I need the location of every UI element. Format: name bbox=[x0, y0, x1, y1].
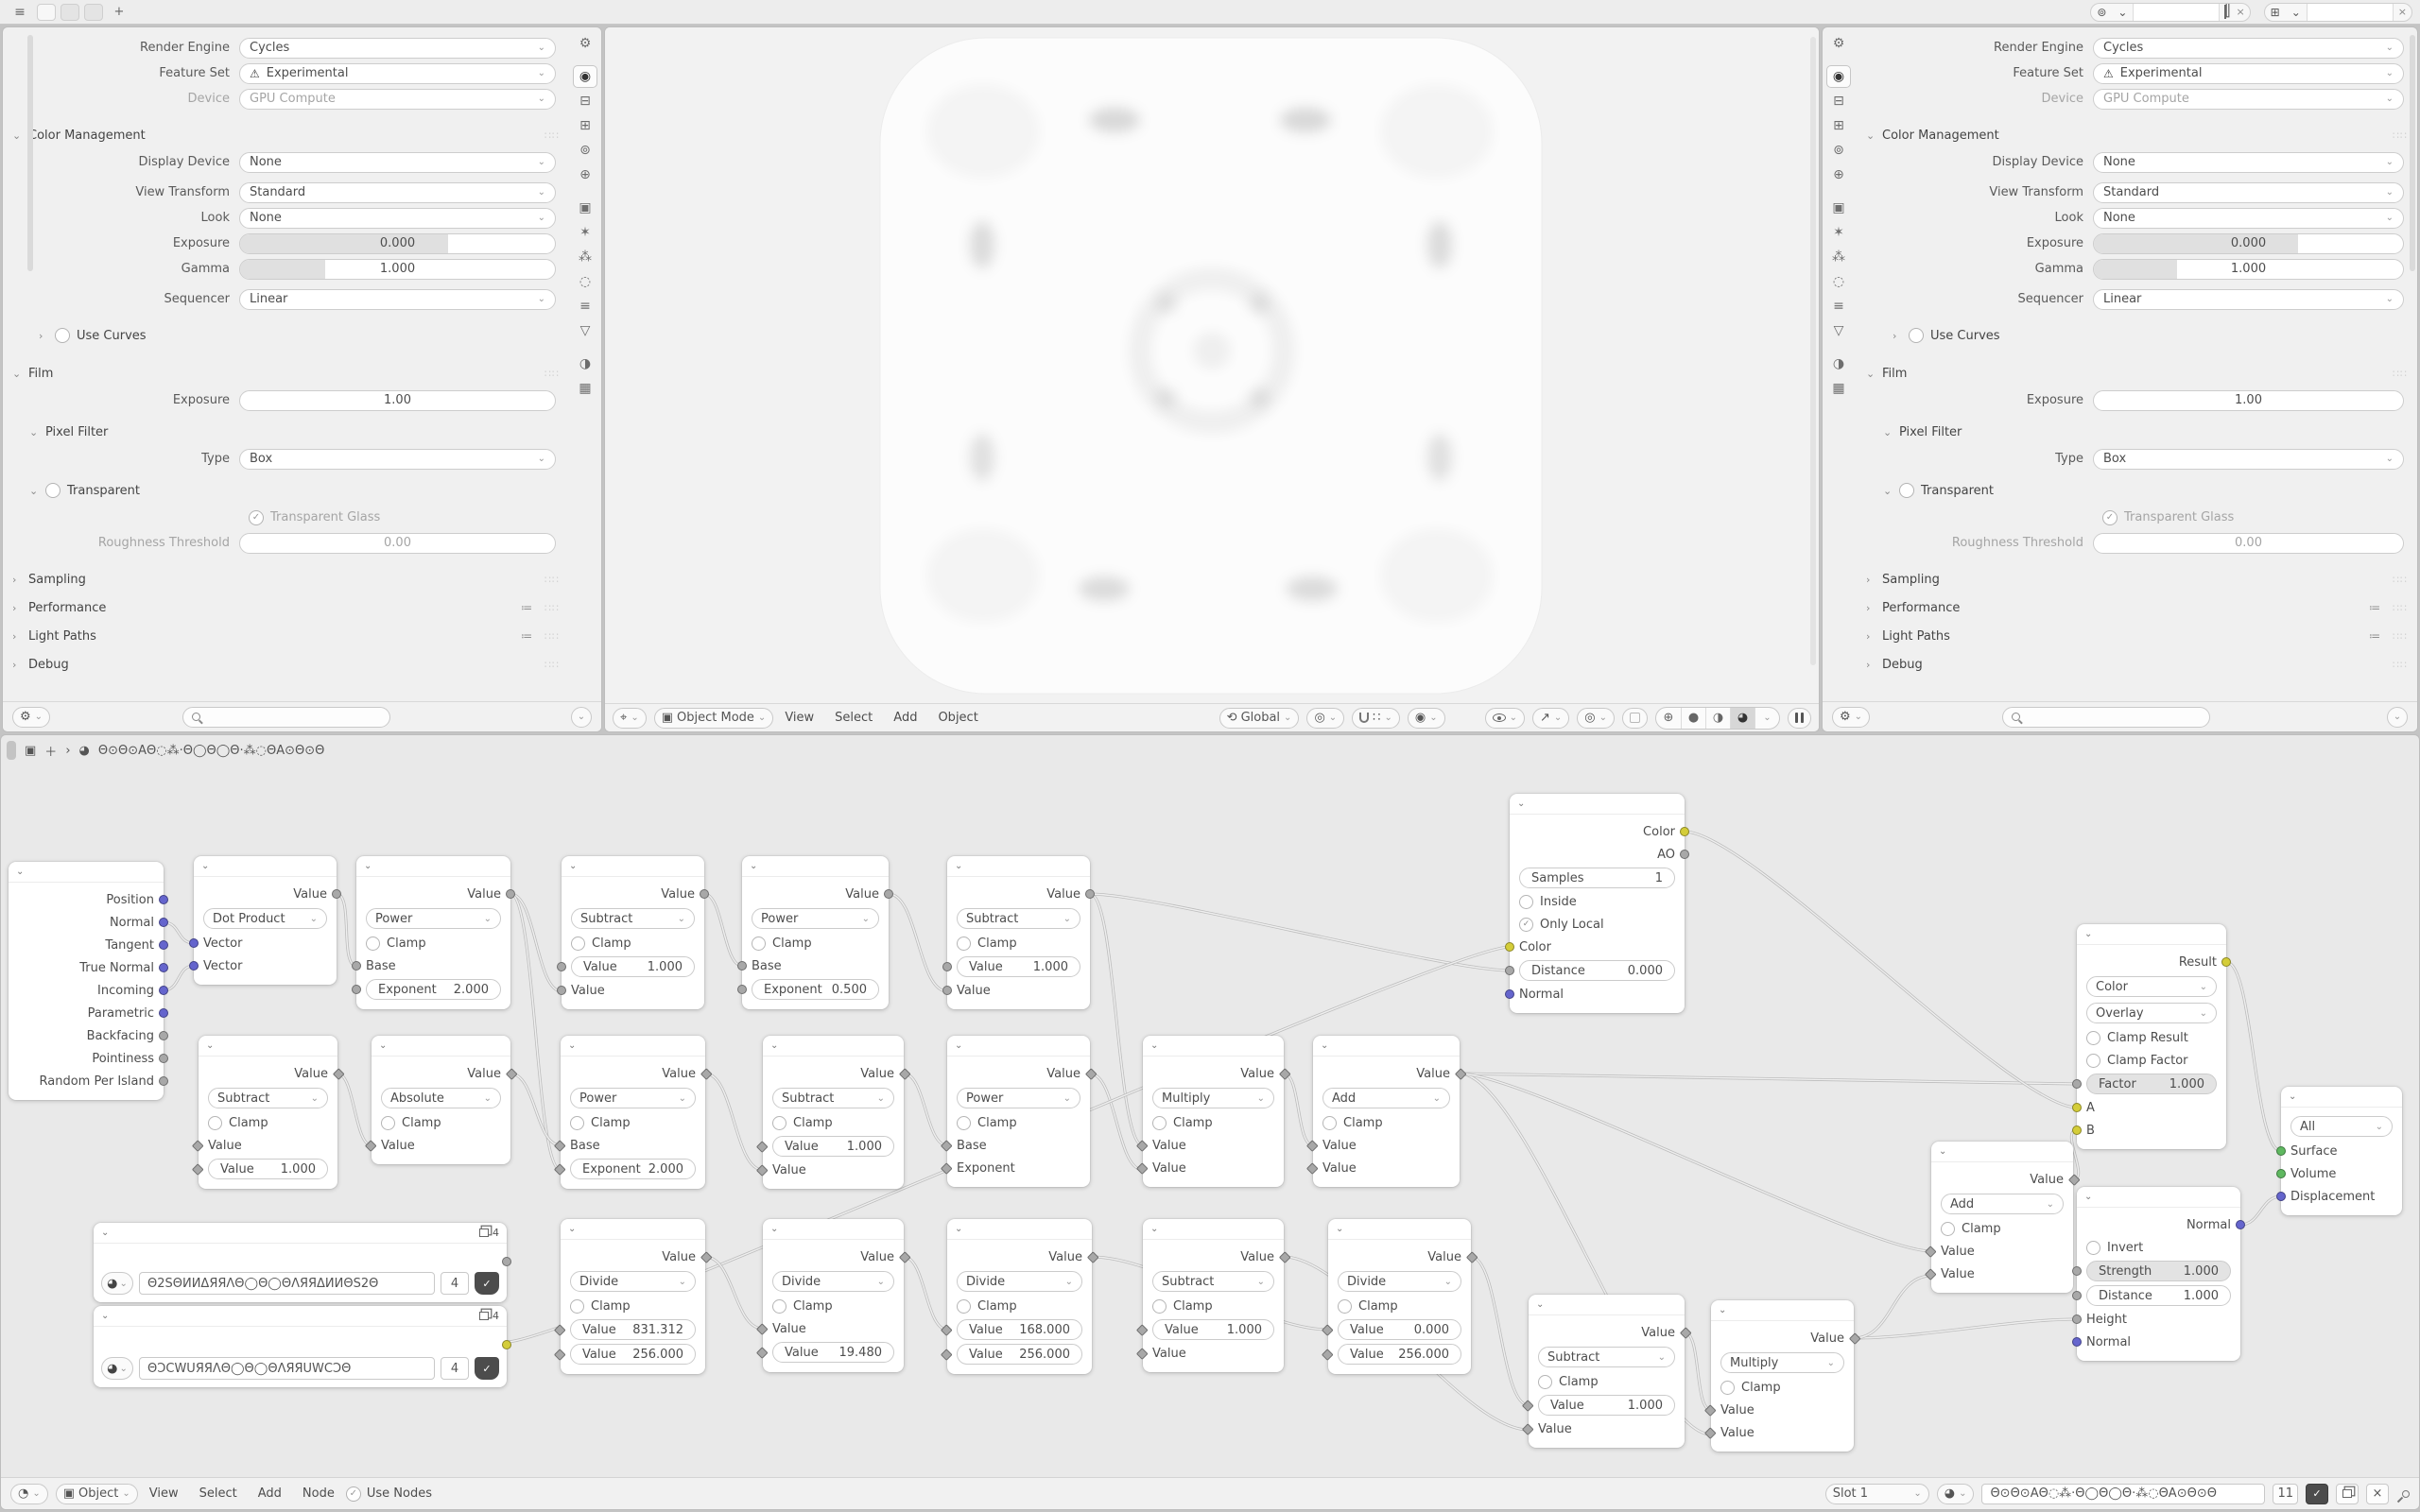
node-operation-dropdown[interactable]: Add⌄ bbox=[1941, 1194, 2064, 1214]
node-operation-dropdown[interactable]: Color⌄ bbox=[2086, 976, 2217, 997]
socket-gray[interactable] bbox=[554, 1324, 565, 1335]
panel-section-debug[interactable]: ›Debug∷∷ bbox=[1857, 650, 2417, 679]
collapse-chevron-icon[interactable]: ⌄ bbox=[1719, 1305, 1726, 1315]
socket-gray[interactable] bbox=[557, 986, 566, 995]
properties-tab-world[interactable]: ⊕ bbox=[1826, 163, 1851, 186]
shading-options-button[interactable]: ⌄ bbox=[1754, 708, 1779, 729]
socket-gray[interactable] bbox=[506, 1068, 517, 1079]
socket-green[interactable] bbox=[2276, 1169, 2286, 1178]
node-checkbox-clamp[interactable]: Clamp bbox=[947, 932, 1090, 954]
collapse-chevron-icon[interactable]: ⌄ bbox=[16, 867, 24, 877]
properties-tab-scene[interactable]: ⊚ bbox=[573, 139, 597, 162]
node-header[interactable]: ⌄ bbox=[356, 856, 510, 877]
node-checkbox-clamp[interactable]: Clamp bbox=[742, 932, 889, 954]
value-field[interactable]: Distance0.000 bbox=[1519, 960, 1675, 981]
node-header[interactable]: ⌄ bbox=[1143, 1036, 1284, 1057]
node-operation-dropdown[interactable]: Subtract⌄ bbox=[208, 1088, 328, 1108]
browse-material-button[interactable]: ◕⌄ bbox=[1937, 1484, 1975, 1504]
node-math-subtract-4[interactable]: ⌄ValueSubtract⌄ClampValue1.000Value bbox=[763, 1036, 904, 1189]
socket-gray[interactable] bbox=[700, 889, 709, 899]
node-header[interactable]: ⌄ bbox=[763, 1036, 904, 1057]
node-checkbox-only-local[interactable]: ✓Only Local bbox=[1510, 913, 1685, 936]
node-math-power-4[interactable]: ⌄ValuePower⌄ClampBaseExponent bbox=[947, 1036, 1090, 1187]
region-handle[interactable] bbox=[7, 741, 16, 760]
socket-gray[interactable] bbox=[1522, 1423, 1533, 1435]
slider-exposure[interactable]: 0.000 bbox=[239, 233, 556, 254]
node-math-subtract-1[interactable]: ⌄ValueSubtract⌄ClampValue1.000Value bbox=[562, 856, 704, 1009]
node-header[interactable]: ⌄ bbox=[947, 856, 1090, 877]
value-field[interactable]: Distance1.000 bbox=[2086, 1285, 2231, 1306]
value-field[interactable]: Value19.480 bbox=[772, 1342, 894, 1363]
node-header[interactable]: ⌄ bbox=[562, 856, 704, 877]
socket-blue[interactable] bbox=[159, 1008, 168, 1018]
socket-gray[interactable] bbox=[1680, 850, 1689, 859]
gizmos-dropdown[interactable]: ↗⌄ bbox=[1532, 708, 1569, 729]
socket-blue[interactable] bbox=[159, 940, 168, 950]
shading-wireframe-button[interactable]: ⊕ bbox=[1656, 708, 1681, 729]
value-field[interactable]: Value256.000 bbox=[957, 1344, 1082, 1365]
node-geometry[interactable]: ⌄PositionNormalTangentTrue NormalIncomin… bbox=[9, 862, 164, 1100]
checkbox-icon[interactable]: ✓ bbox=[249, 510, 264, 525]
panel-section-transparent[interactable]: ⌄Transparent bbox=[20, 476, 569, 505]
dropdown-type[interactable]: Box⌄ bbox=[239, 449, 556, 470]
socket-gray[interactable] bbox=[884, 889, 893, 899]
fake-user-shield-button[interactable]: ✓ bbox=[2306, 1484, 2328, 1504]
socket-blue[interactable] bbox=[159, 963, 168, 972]
socket-gray[interactable] bbox=[1279, 1068, 1290, 1079]
node-math-subtract-6[interactable]: ⌄ValueSubtract⌄ClampValue1.000Value bbox=[1529, 1295, 1685, 1448]
socket-gray[interactable] bbox=[1136, 1324, 1148, 1335]
socket-yellow[interactable] bbox=[2072, 1103, 2082, 1112]
socket-gray[interactable] bbox=[700, 1251, 712, 1263]
socket-gray[interactable] bbox=[2072, 1314, 2082, 1324]
properties-tab-object[interactable]: ▣ bbox=[573, 197, 597, 219]
scene-name-field[interactable] bbox=[2133, 4, 2220, 21]
checkbox-icon[interactable] bbox=[1899, 483, 1914, 498]
socket-yellow[interactable] bbox=[1505, 942, 1514, 952]
node-math-subtract-5[interactable]: ⌄ValueSubtract⌄ClampValue1.000Value bbox=[1143, 1219, 1284, 1372]
panel-section-performance[interactable]: ›Performance≔∷∷ bbox=[3, 593, 569, 622]
fake-user-shield-button[interactable]: ✓ bbox=[475, 1272, 499, 1295]
dropdown-look[interactable]: None⌄ bbox=[239, 208, 556, 229]
value-field[interactable]: Value168.000 bbox=[957, 1319, 1082, 1340]
socket-yellow[interactable] bbox=[1680, 827, 1689, 836]
collapse-chevron-icon[interactable]: ⌄ bbox=[1939, 1146, 1946, 1157]
socket-gray[interactable] bbox=[1522, 1400, 1533, 1411]
collapse-chevron-icon[interactable]: ⌄ bbox=[1336, 1224, 1343, 1234]
node-checkbox-clamp[interactable]: Clamp bbox=[763, 1111, 904, 1134]
socket-gray[interactable] bbox=[1136, 1162, 1148, 1174]
socket-gray[interactable] bbox=[506, 889, 515, 899]
visibility-dropdown[interactable]: ⌄ bbox=[1485, 708, 1525, 729]
panel-section-sampling[interactable]: ›Sampling∷∷ bbox=[3, 565, 569, 593]
node-menu-node[interactable]: Node bbox=[299, 1486, 338, 1501]
socket-gray[interactable] bbox=[756, 1141, 768, 1152]
number-field-exposure[interactable]: 1.00 bbox=[2093, 390, 2404, 411]
socket-gray[interactable] bbox=[737, 961, 747, 971]
viewport-menu-object[interactable]: Object bbox=[934, 711, 981, 725]
shading-solid-button[interactable]: ● bbox=[1681, 708, 1705, 729]
node-checkbox-clamp[interactable]: Clamp bbox=[1529, 1370, 1685, 1393]
node-header[interactable]: ⌄4 bbox=[94, 1223, 507, 1244]
node-header[interactable]: ⌄ bbox=[2281, 1087, 2402, 1108]
checkbox-icon[interactable] bbox=[1909, 328, 1924, 343]
socket-gray[interactable] bbox=[2072, 1291, 2082, 1300]
socket-blue[interactable] bbox=[2236, 1220, 2245, 1229]
socket-gray[interactable] bbox=[941, 1140, 952, 1151]
value-field[interactable]: Factor1.000 bbox=[2086, 1074, 2217, 1094]
node-operation-dropdown[interactable]: Multiply⌄ bbox=[1152, 1088, 1274, 1108]
socket-gray[interactable] bbox=[1849, 1332, 1860, 1344]
node-operation-dropdown[interactable]: Subtract⌄ bbox=[772, 1088, 894, 1108]
number-field-exposure[interactable]: 1.00 bbox=[239, 390, 556, 411]
node-header[interactable]: ⌄ bbox=[2077, 1187, 2240, 1208]
unlink-material-button[interactable]: × bbox=[2366, 1484, 2389, 1504]
socket-gray[interactable] bbox=[333, 1068, 344, 1079]
node-header[interactable]: ⌄ bbox=[372, 1036, 510, 1057]
socket-gray[interactable] bbox=[352, 985, 361, 994]
socket-gray[interactable] bbox=[1466, 1251, 1478, 1263]
material-browse-button[interactable]: ◕⌄ bbox=[101, 1272, 133, 1295]
node-operation-dropdown[interactable]: Divide⌄ bbox=[570, 1271, 696, 1292]
collapse-chevron-icon[interactable]: ⌄ bbox=[2084, 1192, 2092, 1202]
properties-tab-constraints[interactable]: ≡ bbox=[573, 295, 597, 318]
socket-gray[interactable] bbox=[159, 1031, 168, 1040]
socket-gray[interactable] bbox=[1704, 1404, 1716, 1416]
socket-gray[interactable] bbox=[737, 985, 747, 994]
properties-tab-texture[interactable]: ▦ bbox=[1826, 377, 1851, 400]
node-checkbox-clamp[interactable]: Clamp bbox=[1313, 1111, 1460, 1134]
socket-gray[interactable] bbox=[941, 1349, 952, 1360]
properties-tab-view-layer[interactable]: ⊞ bbox=[1826, 114, 1851, 137]
datablock-name-field[interactable]: Θ2ЅΘИИΔЯЯΛΘ◯Θ◯ΘΛЯЯΔИИΘЅ2Θ bbox=[139, 1272, 435, 1295]
socket-gray[interactable] bbox=[2072, 1079, 2082, 1089]
panel-section-pixel-filter[interactable]: ⌄Pixel Filter bbox=[20, 418, 569, 446]
value-field[interactable]: Exponent0.500 bbox=[752, 979, 879, 1000]
properties-tab-tool[interactable]: ⚙ bbox=[573, 32, 597, 55]
node-header[interactable]: ⌄ bbox=[742, 856, 889, 877]
socket-gray[interactable] bbox=[554, 1349, 565, 1360]
node-operation-dropdown[interactable]: Divide⌄ bbox=[772, 1271, 894, 1292]
socket-gray[interactable] bbox=[1087, 1251, 1098, 1263]
properties-tab-world[interactable]: ⊕ bbox=[573, 163, 597, 186]
node-attribute-1[interactable]: ⌄4◕⌄Θ2ЅΘИИΔЯЯΛΘ◯Θ◯ΘΛЯЯΔИИΘЅ2Θ4✓ bbox=[94, 1223, 507, 1302]
dropdown-render-engine[interactable]: Cycles⌄ bbox=[2093, 38, 2404, 59]
dropdown-look[interactable]: None⌄ bbox=[2093, 208, 2404, 229]
node-operation-dropdown[interactable]: Dot Product⌄ bbox=[203, 908, 327, 929]
node-math-power-1[interactable]: ⌄ValuePower⌄ClampBaseExponent2.000 bbox=[356, 856, 510, 1009]
node-header[interactable]: ⌄ bbox=[199, 1036, 337, 1057]
properties-tab-physics[interactable]: ◌ bbox=[573, 270, 597, 293]
node-checkbox-inside[interactable]: Inside bbox=[1510, 890, 1685, 913]
node-canvas[interactable]: ⌄PositionNormalTangentTrue NormalIncomin… bbox=[1, 735, 2419, 1509]
node-operation-dropdown[interactable]: Divide⌄ bbox=[957, 1271, 1082, 1292]
node-checkbox-clamp[interactable]: Clamp bbox=[1143, 1111, 1284, 1134]
node-bump[interactable]: ⌄NormalInvertStrength1.000Distance1.000H… bbox=[2077, 1187, 2240, 1361]
value-field[interactable]: Value831.312 bbox=[570, 1319, 696, 1340]
socket-blue[interactable] bbox=[159, 918, 168, 927]
collapse-chevron-icon[interactable]: ⌄ bbox=[1536, 1299, 1544, 1310]
node-math-power-2[interactable]: ⌄ValuePower⌄ClampBaseExponent0.500 bbox=[742, 856, 889, 1009]
properties-tab-output[interactable]: ⊟ bbox=[1826, 90, 1851, 112]
node-header[interactable]: ⌄ bbox=[561, 1036, 705, 1057]
socket-gray[interactable] bbox=[756, 1164, 768, 1176]
editor-type-button[interactable]: ⌖⌄ bbox=[613, 708, 647, 729]
checkbox-icon[interactable] bbox=[45, 483, 60, 498]
new-scene-button[interactable] bbox=[2220, 6, 2231, 18]
socket-blue[interactable] bbox=[189, 961, 199, 971]
value-field[interactable]: Value1.000 bbox=[208, 1159, 328, 1179]
app-menu-icon[interactable]: ≡ bbox=[8, 5, 32, 20]
node-header[interactable]: ⌄ bbox=[1510, 794, 1685, 815]
value-field[interactable]: Value1.000 bbox=[1538, 1395, 1675, 1416]
node-header[interactable]: ⌄ bbox=[1711, 1300, 1854, 1321]
workspace-tab[interactable] bbox=[84, 4, 103, 21]
node-mix-color[interactable]: ⌄ResultColor⌄Overlay⌄Clamp ResultClamp F… bbox=[2077, 924, 2226, 1149]
node-checkbox-clamp[interactable]: Clamp bbox=[947, 1111, 1090, 1134]
mode-selector[interactable]: ▣Object Mode⌄ bbox=[654, 708, 774, 729]
properties-tab-modifiers[interactable]: ✶ bbox=[573, 221, 597, 244]
value-field[interactable]: Exponent2.000 bbox=[570, 1159, 696, 1179]
number-field-roughness-threshold[interactable]: 0.00 bbox=[239, 533, 556, 554]
socket-gray[interactable] bbox=[1925, 1246, 1936, 1257]
node-math-add-2[interactable]: ⌄ValueAdd⌄ClampValueValue bbox=[1931, 1142, 2073, 1293]
socket-gray[interactable] bbox=[1279, 1251, 1290, 1263]
properties-tab-modifiers[interactable]: ✶ bbox=[1826, 221, 1851, 244]
node-checkbox-clamp[interactable]: Clamp bbox=[1143, 1295, 1284, 1317]
node-operation-dropdown[interactable]: Add⌄ bbox=[1322, 1088, 1450, 1108]
socket-blue[interactable] bbox=[2276, 1192, 2286, 1201]
socket-gray[interactable] bbox=[352, 961, 361, 971]
node-header[interactable]: ⌄ bbox=[947, 1219, 1092, 1240]
viewport-menu-select[interactable]: Select bbox=[831, 711, 876, 725]
properties-tab-tool[interactable]: ⚙ bbox=[1826, 32, 1851, 55]
node-attribute-2[interactable]: ⌄4◕⌄ΘƆСWUЯЯΛΘ◯Θ◯ΘΛЯЯUWСƆΘ4✓ bbox=[94, 1306, 507, 1387]
properties-tab-particles[interactable]: ⁂ bbox=[1826, 246, 1851, 268]
node-menu-view[interactable]: View bbox=[146, 1486, 182, 1501]
dropdown-feature-set[interactable]: ⚠Experimental⌄ bbox=[239, 63, 556, 84]
node-checkbox-clamp-factor[interactable]: Clamp Factor bbox=[2077, 1049, 2226, 1072]
properties-tab-physics[interactable]: ◌ bbox=[1826, 270, 1851, 293]
dropdown-feature-set[interactable]: ⚠Experimental⌄ bbox=[2093, 63, 2404, 84]
collapse-chevron-icon[interactable]: ⌄ bbox=[770, 1040, 778, 1051]
panel-section-debug[interactable]: ›Debug∷∷ bbox=[3, 650, 569, 679]
socket-gray[interactable] bbox=[159, 1054, 168, 1063]
node-checkbox-clamp[interactable]: Clamp bbox=[947, 1295, 1092, 1317]
panel-section-film[interactable]: ⌄Film∷∷ bbox=[1857, 359, 2417, 387]
node-operation-dropdown[interactable]: Subtract⌄ bbox=[1538, 1347, 1675, 1367]
fake-user-shield-button[interactable]: ✓ bbox=[475, 1357, 499, 1380]
material-slot-selector[interactable]: Slot 1⌄ bbox=[1825, 1484, 1929, 1504]
datablock-name-field[interactable]: ΘƆСWUЯЯΛΘ◯Θ◯ΘΛЯЯUWСƆΘ bbox=[139, 1357, 435, 1380]
shading-material-button[interactable]: ◑ bbox=[1705, 708, 1730, 729]
socket-gray[interactable] bbox=[192, 1163, 203, 1175]
socket-gray[interactable] bbox=[756, 1347, 768, 1358]
socket-gray[interactable] bbox=[1704, 1427, 1716, 1438]
options-button[interactable]: ⌄ bbox=[2387, 707, 2408, 728]
collapse-chevron-icon[interactable]: ⌄ bbox=[364, 861, 372, 871]
node-checkbox-clamp[interactable]: Clamp bbox=[372, 1111, 510, 1134]
properties-tab-data[interactable]: ▽ bbox=[1826, 319, 1851, 342]
node-header[interactable]: ⌄ bbox=[947, 1036, 1090, 1057]
node-math-divide-1[interactable]: ⌄ValueDivide⌄ClampValue831.312Value256.0… bbox=[561, 1219, 705, 1374]
pause-render-button[interactable] bbox=[1788, 708, 1811, 729]
users-count[interactable]: 4 bbox=[441, 1272, 469, 1295]
socket-gray[interactable] bbox=[1136, 1140, 1148, 1151]
socket-gray[interactable] bbox=[1505, 966, 1514, 975]
dropdown-type[interactable]: Box⌄ bbox=[2093, 449, 2404, 470]
scene-selector[interactable]: ⊚⌄ × bbox=[2090, 3, 2250, 22]
node-operation-dropdown[interactable]: Power⌄ bbox=[366, 908, 501, 929]
node-checkbox-invert[interactable]: Invert bbox=[2077, 1236, 2240, 1259]
node-checkbox-clamp[interactable]: Clamp bbox=[561, 1295, 705, 1317]
socket-gray[interactable] bbox=[1925, 1268, 1936, 1280]
viewport-menu-view[interactable]: View bbox=[781, 711, 818, 725]
dropdown-display-device[interactable]: None⌄ bbox=[2093, 152, 2404, 173]
collapse-chevron-icon[interactable]: ⌄ bbox=[569, 861, 577, 871]
node-operation-dropdown[interactable]: Overlay⌄ bbox=[2086, 1003, 2217, 1023]
collapse-chevron-icon[interactable]: ⌄ bbox=[1321, 1040, 1328, 1051]
node-operation-dropdown[interactable]: Power⌄ bbox=[752, 908, 879, 929]
node-header[interactable]: ⌄ bbox=[194, 856, 337, 877]
value-field[interactable]: Value1.000 bbox=[1152, 1319, 1274, 1340]
editor-type-button[interactable]: ⚙⌄ bbox=[12, 707, 50, 728]
dropdown-view-transform[interactable]: Standard⌄ bbox=[239, 182, 556, 203]
socket-gray[interactable] bbox=[159, 1076, 168, 1086]
socket-blue[interactable] bbox=[1505, 989, 1514, 999]
dropdown-render-engine[interactable]: Cycles⌄ bbox=[239, 38, 556, 59]
snap-toggle[interactable]: ∷⌄ bbox=[1352, 708, 1400, 729]
socket-gray[interactable] bbox=[1322, 1324, 1333, 1335]
socket-gray[interactable] bbox=[1680, 1327, 1691, 1338]
value-field[interactable]: Value1.000 bbox=[571, 956, 695, 977]
socket-gray[interactable] bbox=[554, 1163, 565, 1175]
collapse-chevron-icon[interactable]: ⌄ bbox=[101, 1228, 109, 1238]
collapse-chevron-icon[interactable]: ⌄ bbox=[770, 1224, 778, 1234]
viewport-menu-add[interactable]: Add bbox=[890, 711, 921, 725]
collapse-chevron-icon[interactable]: ⌄ bbox=[568, 1040, 576, 1051]
shader-type-selector[interactable]: ▣Object⌄ bbox=[56, 1484, 138, 1504]
value-field[interactable]: Value256.000 bbox=[570, 1344, 696, 1365]
node-checkbox-clamp[interactable]: Clamp bbox=[1711, 1376, 1854, 1399]
node-checkbox-clamp[interactable]: Clamp bbox=[562, 932, 704, 954]
collapse-chevron-icon[interactable]: ⌄ bbox=[101, 1311, 109, 1321]
node-operation-dropdown[interactable]: All⌄ bbox=[2290, 1116, 2393, 1137]
node-checkbox-clamp[interactable]: Clamp bbox=[561, 1111, 705, 1134]
socket-gray[interactable] bbox=[1085, 1068, 1097, 1079]
node-checkbox-clamp[interactable]: Clamp bbox=[1328, 1295, 1471, 1317]
node-math-subtract-3[interactable]: ⌄ValueSubtract⌄ClampValueValue1.000 bbox=[199, 1036, 337, 1189]
search-input[interactable] bbox=[2002, 707, 2210, 728]
properties-tab-material[interactable]: ◑ bbox=[1826, 352, 1851, 375]
socket-blue[interactable] bbox=[2072, 1337, 2082, 1347]
pin-icon[interactable] bbox=[2400, 1488, 2411, 1499]
shading-rendered-button[interactable]: ◕ bbox=[1730, 708, 1754, 729]
material-users-count[interactable]: 11 bbox=[2273, 1484, 2298, 1504]
node-math-divide-2[interactable]: ⌄ValueDivide⌄ClampValueValue19.480 bbox=[763, 1219, 904, 1372]
node-ambient-occlusion[interactable]: ⌄ColorAOSamples1Inside✓Only LocalColorDi… bbox=[1510, 794, 1685, 1013]
unlink-scene-button[interactable]: × bbox=[2231, 6, 2249, 18]
socket-yellow[interactable] bbox=[502, 1340, 511, 1349]
search-input[interactable] bbox=[182, 707, 390, 728]
collapse-chevron-icon[interactable]: ⌄ bbox=[568, 1224, 576, 1234]
properties-tab-data[interactable]: ▽ bbox=[573, 319, 597, 342]
value-field[interactable]: Strength1.000 bbox=[2086, 1261, 2231, 1281]
node-menu-select[interactable]: Select bbox=[196, 1486, 241, 1501]
node-material-output[interactable]: ⌄All⌄SurfaceVolumeDisplacement bbox=[2281, 1087, 2402, 1215]
checkbox-icon[interactable] bbox=[55, 328, 70, 343]
panel-section-pixel-filter[interactable]: ⌄Pixel Filter bbox=[1874, 418, 2417, 446]
node-math-divide-3[interactable]: ⌄ValueDivide⌄ClampValue168.000Value256.0… bbox=[947, 1219, 1092, 1374]
socket-gray[interactable] bbox=[557, 962, 566, 971]
properties-tab-scene[interactable]: ⊚ bbox=[1826, 139, 1851, 162]
users-count[interactable]: 4 bbox=[441, 1357, 469, 1380]
socket-gray[interactable] bbox=[365, 1140, 376, 1151]
dropdown-sequencer[interactable]: Linear⌄ bbox=[239, 289, 556, 310]
socket-gray[interactable] bbox=[899, 1251, 910, 1263]
copy-material-button[interactable] bbox=[2336, 1484, 2359, 1504]
node-math-absolute[interactable]: ⌄ValueAbsolute⌄ClampValue bbox=[372, 1036, 510, 1164]
properties-tab-particles[interactable]: ⁂ bbox=[573, 246, 597, 268]
node-header[interactable]: ⌄ bbox=[1529, 1295, 1685, 1315]
socket-gray[interactable] bbox=[554, 1140, 565, 1151]
socket-gray[interactable] bbox=[700, 1068, 712, 1079]
socket-gray[interactable] bbox=[502, 1257, 511, 1266]
dropdown-display-device[interactable]: None⌄ bbox=[239, 152, 556, 173]
node-operation-dropdown[interactable]: Absolute⌄ bbox=[381, 1088, 501, 1108]
scrollbar[interactable] bbox=[27, 35, 33, 271]
node-operation-dropdown[interactable]: Subtract⌄ bbox=[957, 908, 1080, 929]
node-header[interactable]: ⌄4 bbox=[94, 1306, 507, 1327]
collapse-chevron-icon[interactable]: ⌄ bbox=[201, 861, 209, 871]
node-checkbox-clamp[interactable]: Clamp bbox=[199, 1111, 337, 1134]
scrollbar[interactable] bbox=[2410, 35, 2415, 271]
collapse-chevron-icon[interactable]: ⌄ bbox=[1517, 799, 1525, 809]
slider-exposure[interactable]: 0.000 bbox=[2093, 233, 2404, 254]
socket-gray[interactable] bbox=[192, 1140, 203, 1151]
node-header[interactable]: ⌄ bbox=[1328, 1219, 1471, 1240]
properties-tab-material[interactable]: ◑ bbox=[573, 352, 597, 375]
node-math-multiply-2[interactable]: ⌄ValueMultiply⌄ClampValueValue bbox=[1711, 1300, 1854, 1452]
socket-blue[interactable] bbox=[159, 986, 168, 995]
socket-gray[interactable] bbox=[942, 962, 952, 971]
value-field[interactable]: Exponent2.000 bbox=[366, 979, 501, 1000]
options-button[interactable]: ⌄ bbox=[571, 707, 592, 728]
properties-tab-render[interactable]: ◉ bbox=[573, 65, 597, 88]
properties-tab-object[interactable]: ▣ bbox=[1826, 197, 1851, 219]
socket-green[interactable] bbox=[2276, 1146, 2286, 1156]
socket-gray[interactable] bbox=[2072, 1266, 2082, 1276]
panel-section-light-paths[interactable]: ›Light Paths≔∷∷ bbox=[1857, 622, 2417, 650]
panel-section-color-management[interactable]: ⌄Color Management∷∷ bbox=[3, 121, 569, 149]
properties-tab-output[interactable]: ⊟ bbox=[573, 90, 597, 112]
socket-gray[interactable] bbox=[1322, 1349, 1333, 1360]
socket-gray[interactable] bbox=[899, 1068, 910, 1079]
dropdown-sequencer[interactable]: Linear⌄ bbox=[2093, 289, 2404, 310]
remove-view-layer-button[interactable]: × bbox=[2394, 6, 2411, 18]
dropdown-device[interactable]: GPU Compute⌄ bbox=[239, 89, 556, 110]
node-math-divide-4[interactable]: ⌄ValueDivide⌄ClampValue0.000Value256.000 bbox=[1328, 1219, 1471, 1374]
node-checkbox-clamp[interactable]: Clamp bbox=[1931, 1217, 2073, 1240]
node-operation-dropdown[interactable]: Divide⌄ bbox=[1338, 1271, 1461, 1292]
socket-gray[interactable] bbox=[332, 889, 341, 899]
material-browse-button[interactable]: ◕⌄ bbox=[101, 1357, 133, 1380]
value-field[interactable]: Value1.000 bbox=[957, 956, 1080, 977]
socket-yellow[interactable] bbox=[2221, 957, 2231, 967]
collapse-chevron-icon[interactable]: ⌄ bbox=[955, 1224, 962, 1234]
node-operation-dropdown[interactable]: Subtract⌄ bbox=[1152, 1271, 1274, 1292]
node-checkbox-clamp[interactable]: Clamp bbox=[763, 1295, 904, 1317]
